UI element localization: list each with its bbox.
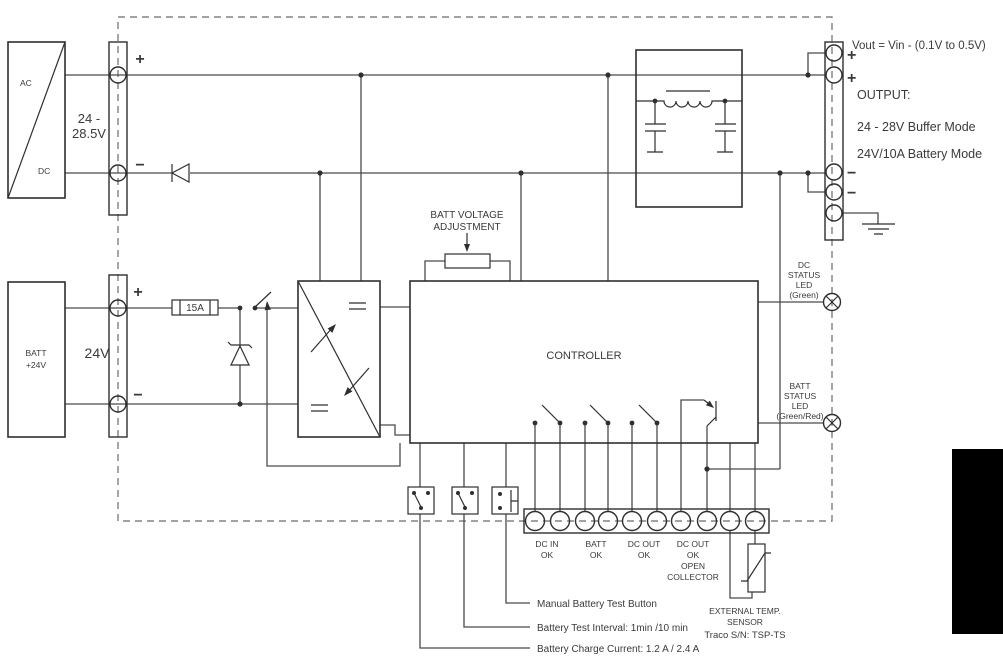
manual-test-button (492, 487, 518, 514)
svg-text:STATUS: STATUS (788, 270, 821, 280)
output-minus1-sign: − (847, 165, 856, 182)
vout-note: Vout = Vin - (0.1V to 0.5V) (852, 40, 986, 52)
ac-dc-converter-block: AC DC (8, 42, 65, 198)
battery-minus-sign: − (133, 387, 142, 404)
setting-label-manual-test: Manual Battery Test Button (537, 599, 657, 610)
temp-sensor-label-line1: EXTERNAL TEMP. (709, 606, 781, 616)
temp-sensor-part-number: Traco S/N: TSP-TS (704, 630, 785, 641)
output-mode1: 24 - 28V Buffer Mode (857, 120, 976, 134)
svg-text:COLLECTOR: COLLECTOR (667, 572, 719, 582)
battery-plus-sign: + (133, 284, 142, 301)
temp-sensor-label-line2: SENSOR (727, 617, 763, 627)
controller-label: CONTROLLER (546, 350, 621, 362)
ac-label: AC (20, 78, 32, 88)
controller-block: CONTROLLER (410, 281, 758, 443)
output-title: OUTPUT: (857, 88, 910, 102)
dc-input-terminal-strip: + − (109, 42, 145, 215)
output-filter-block (636, 50, 742, 207)
enclosure-boundary (118, 17, 832, 521)
svg-text:LED: LED (792, 401, 809, 411)
pot-label-line2: ADJUSTMENT (433, 222, 500, 233)
svg-text:OPEN: OPEN (681, 561, 705, 571)
svg-text:BATT: BATT (585, 539, 606, 549)
external-temp-sensor: EXTERNAL TEMP. SENSOR Traco S/N: TSP-TS (704, 544, 785, 641)
svg-text:OK: OK (687, 550, 700, 560)
led-dc-status: DC STATUS LED (Green) (788, 260, 841, 311)
pot-label-line1: BATT VOLTAGE (430, 210, 503, 221)
svg-text:DC OUT: DC OUT (628, 539, 661, 549)
svg-text:DC IN: DC IN (535, 539, 558, 549)
svg-text:28.5V: 28.5V (72, 126, 106, 141)
battery-disconnect-switch (238, 292, 271, 310)
signal-terminal-labels: DC IN OK BATT OK DC OUT OK DC OUT OK OPE… (535, 539, 718, 582)
svg-text:OK: OK (638, 550, 651, 560)
battery-label-line2: +24V (26, 360, 46, 370)
svg-text:STATUS: STATUS (784, 391, 817, 401)
earth-ground-symbol (862, 224, 895, 234)
relay-contacts (533, 405, 660, 425)
svg-text:DC OUT: DC OUT (677, 539, 710, 549)
input-minus-sign: − (135, 157, 144, 174)
dc-label: DC (38, 166, 50, 176)
fuse-label: 15A (186, 303, 204, 314)
svg-text:(Green): (Green) (789, 290, 818, 300)
output-terminal-strip: + + − − (825, 42, 856, 240)
open-collector-transistor (704, 400, 716, 426)
svg-text:DC: DC (798, 260, 810, 270)
battery-voltage-label: 24V (85, 345, 111, 361)
battery-label-line1: BATT (25, 348, 46, 358)
output-minus2-sign: − (847, 185, 856, 202)
input-diode (172, 164, 189, 182)
output-mode2: 24V/10A Battery Mode (857, 147, 982, 161)
input-voltage-label: 24 - 28.5V (72, 111, 106, 141)
setting-label-test-interval: Battery Test Interval: 1min /10 min (537, 623, 688, 634)
wires (65, 53, 878, 648)
dc-symbol-top (349, 303, 366, 309)
svg-text:OK: OK (590, 550, 603, 560)
battery-terminal-strip: + − (109, 275, 143, 437)
svg-text:(Green/Red): (Green/Red) (776, 411, 823, 421)
battery-block: BATT +24V (8, 282, 65, 437)
svg-text:LED: LED (796, 280, 813, 290)
batt-voltage-adjust-pot: BATT VOLTAGE ADJUSTMENT (430, 210, 503, 268)
setting-label-charge-current: Battery Charge Current: 1.2 A / 2.4 A (537, 644, 700, 655)
input-plus-sign: + (135, 51, 144, 68)
svg-text:OK: OK (541, 550, 554, 560)
test-interval-switch (452, 487, 478, 514)
charge-current-switch (408, 487, 434, 514)
output-plus2-sign: + (847, 70, 856, 87)
zener-diode (228, 342, 252, 365)
capacitor-left (645, 101, 666, 152)
page-edge-tab (952, 449, 1003, 634)
capacitor-right (715, 101, 736, 152)
svg-text:24 -: 24 - (78, 111, 100, 126)
svg-text:BATT: BATT (789, 381, 810, 391)
fuse: 15A (172, 300, 218, 315)
dc-dc-converter-block (298, 281, 380, 437)
dc-symbol-bottom (311, 405, 328, 411)
led-batt-status: BATT STATUS LED (Green/Red) (776, 381, 840, 432)
circuit-diagram-page: AC DC 24 - 28.5V BATT +24V 24V + − + − 1… (0, 0, 1003, 669)
circuit-diagram: AC DC 24 - 28.5V BATT +24V 24V + − + − 1… (0, 0, 1003, 669)
